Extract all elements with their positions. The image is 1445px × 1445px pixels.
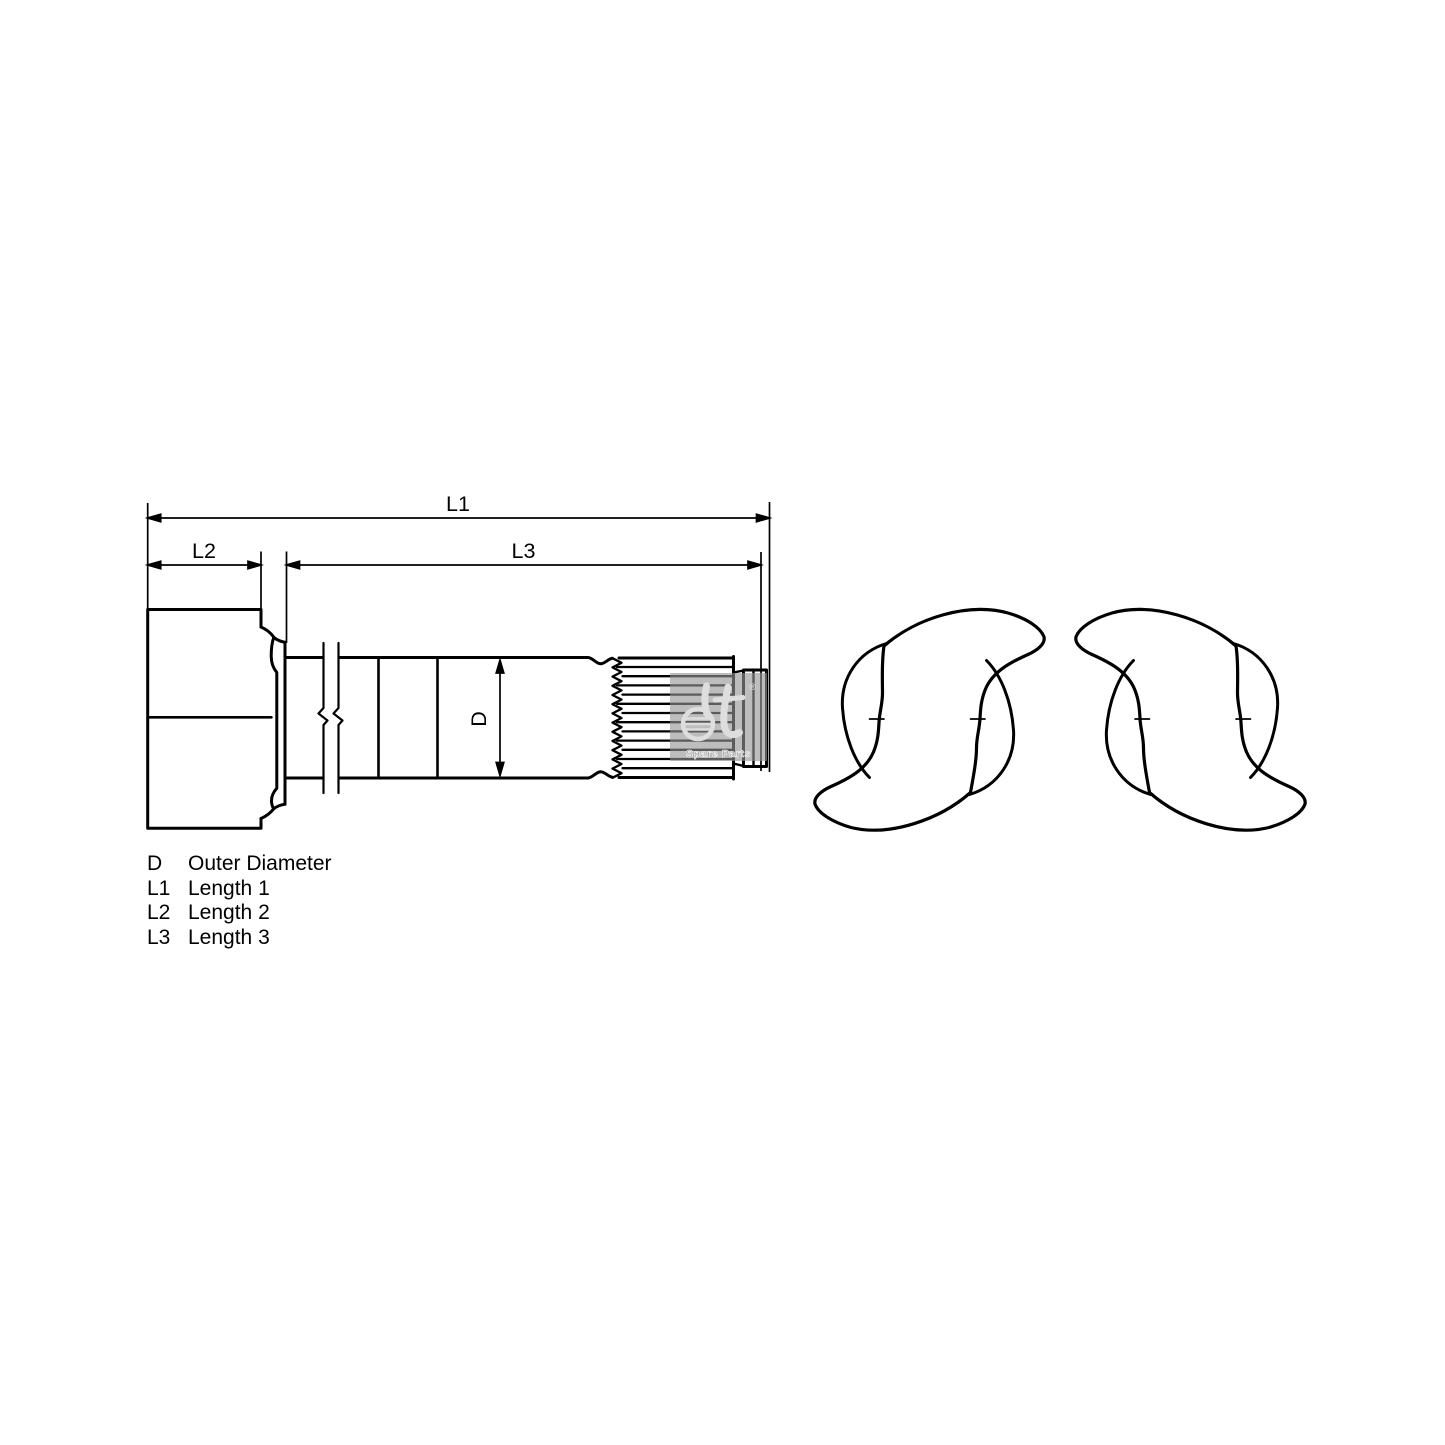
arrowhead-icon [148,561,161,569]
arrowhead-icon [496,763,504,776]
dimension-label-l3: L3 [512,539,536,563]
break-line-right [334,643,343,793]
dimension-label-d: D [467,711,491,727]
s-cam-profile-right [1076,609,1305,830]
dimension-label-l2: L2 [192,539,216,563]
legend-row-l2: L2Length 2 [147,901,332,926]
shaft-body [285,643,613,793]
s-cam-profiles [815,609,1305,830]
s-cam-profile-left [815,609,1044,830]
dt-logo: ® Spare Parts [670,673,767,761]
dimension-label-l1: L1 [446,492,470,516]
legend-description: Length 2 [188,901,270,924]
dt-logo-t-stem [724,687,740,735]
arrowhead-icon [248,561,261,569]
arrowhead-icon [748,561,761,569]
legend-row-l1: L1Length 1 [147,877,332,902]
arrowhead-icon [757,514,770,522]
legend-symbol: D [147,852,188,877]
legend-description: Length 1 [188,877,270,900]
arrowhead-icon [287,561,300,569]
dimension-d [496,660,504,776]
dt-logo-d-stem [705,686,707,714]
legend-row-d: DOuter Diameter [147,852,332,877]
legend-symbol: L3 [147,926,188,951]
legend-symbol: L1 [147,877,188,902]
legend-row-l3: L3Length 3 [147,926,332,951]
cam-outline [815,609,1044,830]
cam-head-body [148,610,272,829]
arrowhead-icon [496,660,504,673]
dt-logo-t-crossbar [715,698,743,701]
watermark-caption: Spare Parts [686,748,751,760]
registered-trademark-icon: ® [749,682,756,693]
arrowhead-icon [148,514,161,522]
flange-neck [261,627,285,819]
legend-symbol: L2 [147,901,188,926]
technical-drawing-page: L1 L2 L3 D [0,0,1445,1445]
cam-outline [1076,609,1305,830]
break-line-left [319,643,328,793]
dt-logo-watermark: ® Spare Parts [670,673,767,761]
legend: DOuter Diameter L1Length 1 L2Length 2 L3… [147,852,332,950]
legend-description: Length 3 [188,926,270,949]
legend-description: Outer Diameter [188,852,332,875]
